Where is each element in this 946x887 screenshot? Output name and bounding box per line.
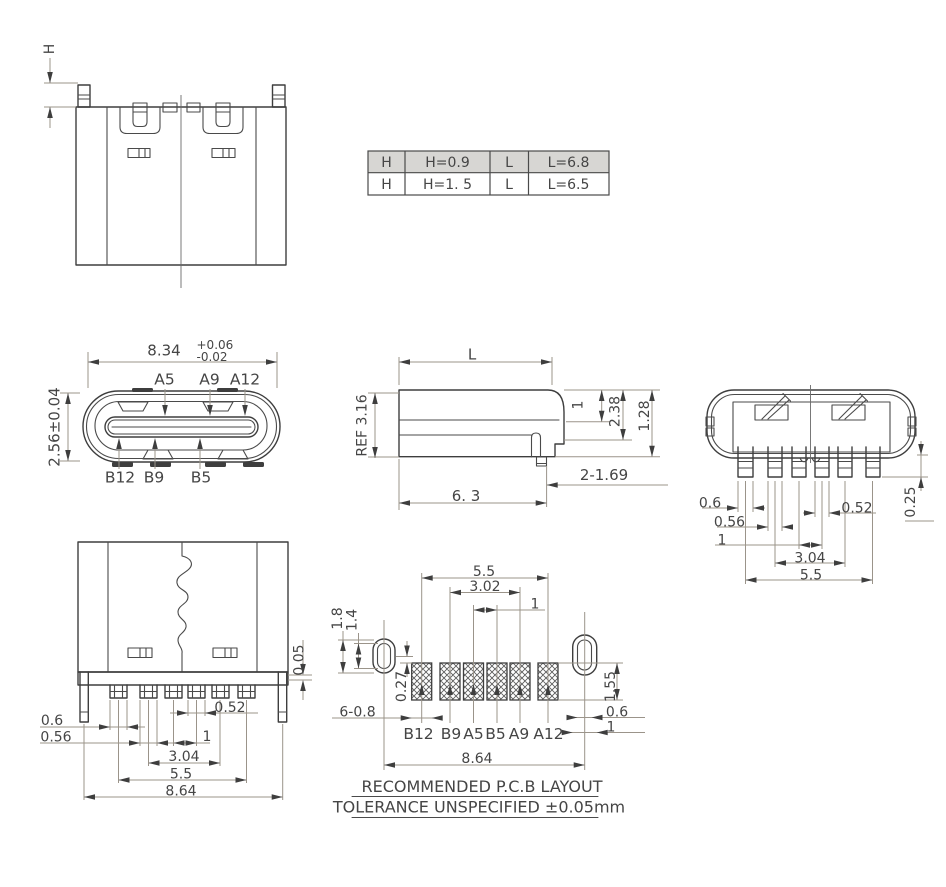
dim-0-25: 0.25 [903, 486, 919, 517]
dim-3-04: 3.04 [794, 550, 825, 566]
parting-line [177, 542, 191, 672]
dim-0-6: 0.6 [606, 704, 628, 720]
dim-1: 1 [718, 532, 727, 548]
dim-5-5: 5.5 [800, 567, 822, 583]
dim-5-5: 5.5 [473, 564, 495, 580]
spec-table: H H=0.9 L L=6.8 H H=1. 5 L L=6.5 [368, 151, 609, 195]
pin-label-a12: A12 [230, 370, 260, 388]
dim-1-55: 1.55 [603, 671, 619, 702]
back-view: 0.6 0.56 1 0.52 3.04 5.5 8.64 0.05 [40, 542, 312, 800]
dim-6-3: 6. 3 [452, 487, 481, 505]
table-cell-r2c2: H=1. 5 [423, 177, 472, 193]
pin-label-a9: A9 [199, 370, 219, 388]
rear-view: 0.6 0.56 1 3.04 5.5 0.52 0.25 [699, 385, 934, 584]
dim-ref: REF 3.16 [354, 394, 370, 456]
back-pins [110, 685, 255, 698]
pad-label-a12: A12 [533, 725, 563, 743]
dim-width-tol-minus: -0.02 [197, 350, 228, 364]
table-cell-r2c4: L=6.5 [548, 177, 590, 193]
table-cell-r1c3: L [505, 155, 513, 171]
dim-3-04: 3.04 [168, 749, 199, 765]
table-cell-r2c3: L [505, 177, 513, 193]
dim-0-05: 0.05 [291, 644, 307, 675]
pin-label-b5: B5 [191, 468, 212, 486]
table-cell-r1c2: H=0.9 [425, 155, 470, 171]
dim-6-0-8: 6-0.8 [339, 704, 375, 720]
table-cell-r2c1: H [381, 177, 392, 193]
pad-label-b5: B5 [485, 725, 506, 743]
pin-label-a5: A5 [154, 370, 174, 388]
engineering-drawing-sheet: H H H=0.9 L L=6.8 H H=1. 5 L L=6.5 [0, 0, 946, 887]
pad-label-b12: B12 [403, 725, 433, 743]
dim-1-top: 1 [531, 596, 540, 612]
dim-height: 2.56±0.04 [45, 387, 63, 466]
pad-label-b9: B9 [441, 725, 462, 743]
cavity [95, 402, 267, 451]
dim-1-28: 1.28 [637, 400, 653, 431]
h-dim-arrows [47, 72, 53, 118]
solder-pin [537, 457, 547, 466]
dim-width: 8.34 [147, 341, 180, 359]
dim-1: 1 [570, 401, 586, 410]
dim-3-02: 3.02 [469, 579, 500, 595]
drawing-canvas: H H H=0.9 L L=6.8 H H=1. 5 L L=6.5 [0, 0, 946, 887]
side-view: L REF 3.16 1 2.38 1.28 2-1.69 6. 3 [354, 345, 668, 510]
front-section-view: H [42, 44, 286, 288]
dim-0-6: 0.6 [699, 495, 721, 511]
dim-h-label: H [42, 44, 58, 55]
flange [78, 672, 288, 685]
dim-0-27: 0.27 [394, 671, 410, 702]
side-body [399, 390, 564, 457]
pin-label-b9: B9 [144, 468, 165, 486]
dim-2-38: 2.38 [607, 396, 623, 427]
dim-8-64: 8.64 [461, 751, 492, 767]
pad-label-a9: A9 [509, 725, 529, 743]
dim-2-1-69: 2-1.69 [580, 466, 628, 484]
dim-8-64: 8.64 [165, 783, 196, 799]
pin-label-b12: B12 [105, 468, 135, 486]
pcb-layout-view: 5.5 3.02 1 1.8 1.4 0.27 6-0.8 1.55 0.6 1… [330, 564, 645, 818]
table-cell-r1c4: L=6.8 [548, 155, 590, 171]
dim-0-56: 0.56 [714, 514, 745, 530]
table-cell-r1c1: H [381, 155, 392, 171]
dim-0-6: 0.6 [41, 713, 63, 729]
note-pcb-layout: RECOMMENDED P.C.B LAYOUT [361, 777, 602, 796]
dim-0-56: 0.56 [40, 729, 71, 745]
dim-1-right: 1 [607, 719, 616, 735]
pad-label-a5: A5 [463, 725, 483, 743]
dim-1: 1 [203, 729, 212, 745]
dim-5-5: 5.5 [170, 766, 192, 782]
pcb-pads [412, 663, 558, 700]
dim-1-4: 1.4 [344, 609, 360, 631]
dim-0-52: 0.52 [841, 500, 872, 516]
note-tolerance: TOLERANCE UNSPECIFIED ±0.05mm [332, 798, 625, 817]
face-view: 8.34 +0.06 -0.02 2.56±0.04 A5 A9 A12 B12… [45, 338, 280, 486]
dim-0-52: 0.52 [214, 700, 245, 716]
dim-l-label: L [468, 345, 477, 363]
